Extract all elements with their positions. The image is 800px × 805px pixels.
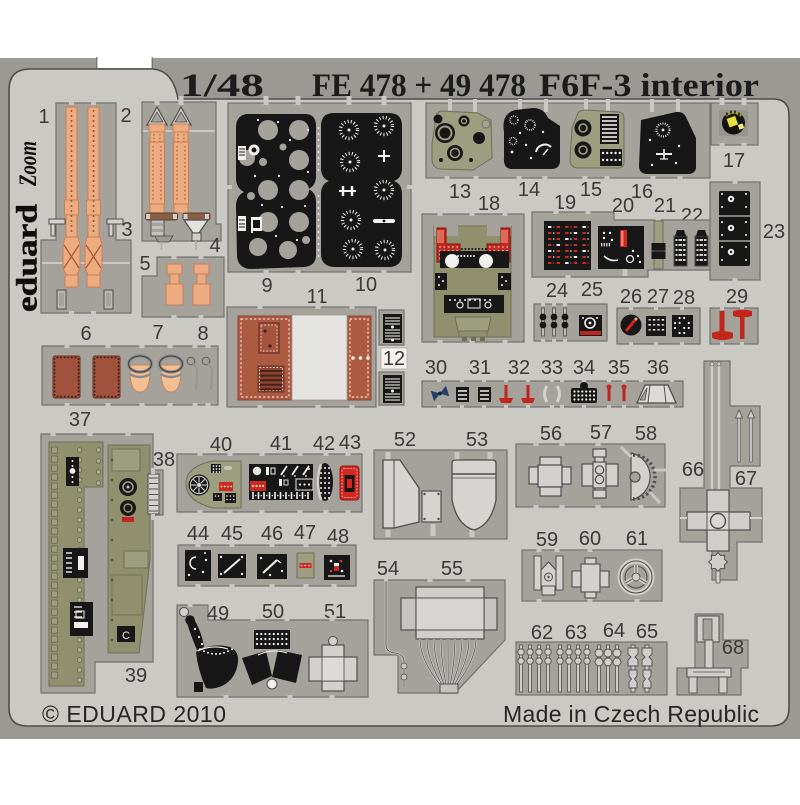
svg-text:41: 41 (270, 433, 292, 455)
svg-text:Made in Czech Republic: Made in Czech Republic (503, 701, 759, 727)
svg-text:24: 24 (546, 280, 568, 302)
svg-text:51: 51 (324, 601, 346, 623)
svg-text:2: 2 (120, 105, 131, 127)
svg-text:57: 57 (590, 422, 612, 444)
svg-text:13: 13 (449, 181, 471, 203)
svg-text:49: 49 (207, 603, 229, 625)
svg-text:F6F-3 interior: F6F-3 interior (539, 68, 759, 104)
svg-text:eduard: eduard (11, 204, 44, 312)
svg-text:1/48: 1/48 (180, 68, 264, 104)
svg-text:39: 39 (125, 665, 147, 687)
svg-text:20: 20 (612, 195, 634, 217)
svg-text:52: 52 (394, 429, 416, 451)
svg-text:64: 64 (603, 620, 625, 642)
svg-text:48: 48 (327, 526, 349, 548)
svg-text:4: 4 (209, 235, 220, 257)
svg-text:17: 17 (723, 150, 745, 172)
svg-text:50: 50 (262, 601, 284, 623)
svg-text:9: 9 (261, 275, 272, 297)
svg-text:8: 8 (197, 323, 208, 345)
svg-text:33: 33 (541, 357, 563, 379)
svg-text:30: 30 (425, 357, 447, 379)
svg-text:67: 67 (735, 468, 757, 490)
svg-text:65: 65 (636, 621, 658, 643)
svg-text:23: 23 (763, 221, 785, 243)
svg-text:34: 34 (573, 357, 595, 379)
svg-text:FE 478 + 49 478: FE 478 + 49 478 (312, 68, 526, 104)
svg-text:36: 36 (647, 357, 669, 379)
svg-text:1: 1 (38, 106, 49, 128)
svg-text:68: 68 (722, 637, 744, 659)
svg-text:61: 61 (626, 528, 648, 550)
svg-text:29: 29 (726, 286, 748, 308)
svg-text:53: 53 (466, 429, 488, 451)
svg-text:12: 12 (383, 348, 405, 370)
svg-text:56: 56 (540, 423, 562, 445)
svg-text:© EDUARD 2010: © EDUARD 2010 (42, 701, 226, 727)
svg-text:66: 66 (682, 459, 704, 481)
svg-text:47: 47 (294, 522, 316, 544)
svg-text:3: 3 (121, 219, 132, 241)
svg-text:5: 5 (139, 253, 150, 275)
svg-text:32: 32 (508, 357, 530, 379)
svg-text:10: 10 (355, 274, 377, 296)
svg-text:58: 58 (635, 423, 657, 445)
svg-text:63: 63 (565, 622, 587, 644)
svg-text:35: 35 (608, 357, 630, 379)
svg-text:C: C (122, 630, 130, 642)
svg-text:6: 6 (80, 323, 91, 345)
svg-text:37: 37 (69, 409, 91, 431)
svg-text:62: 62 (531, 622, 553, 644)
svg-text:31: 31 (469, 357, 491, 379)
svg-text:38: 38 (153, 449, 175, 471)
svg-text:21: 21 (654, 195, 676, 217)
svg-text:Zoom: Zoom (15, 141, 42, 187)
svg-text:55: 55 (441, 558, 463, 580)
svg-text:14: 14 (518, 179, 540, 201)
svg-text:25: 25 (581, 279, 603, 301)
svg-text:7: 7 (152, 322, 163, 344)
svg-text:15: 15 (580, 179, 602, 201)
svg-text:18: 18 (478, 193, 500, 215)
svg-text:16: 16 (631, 181, 653, 203)
